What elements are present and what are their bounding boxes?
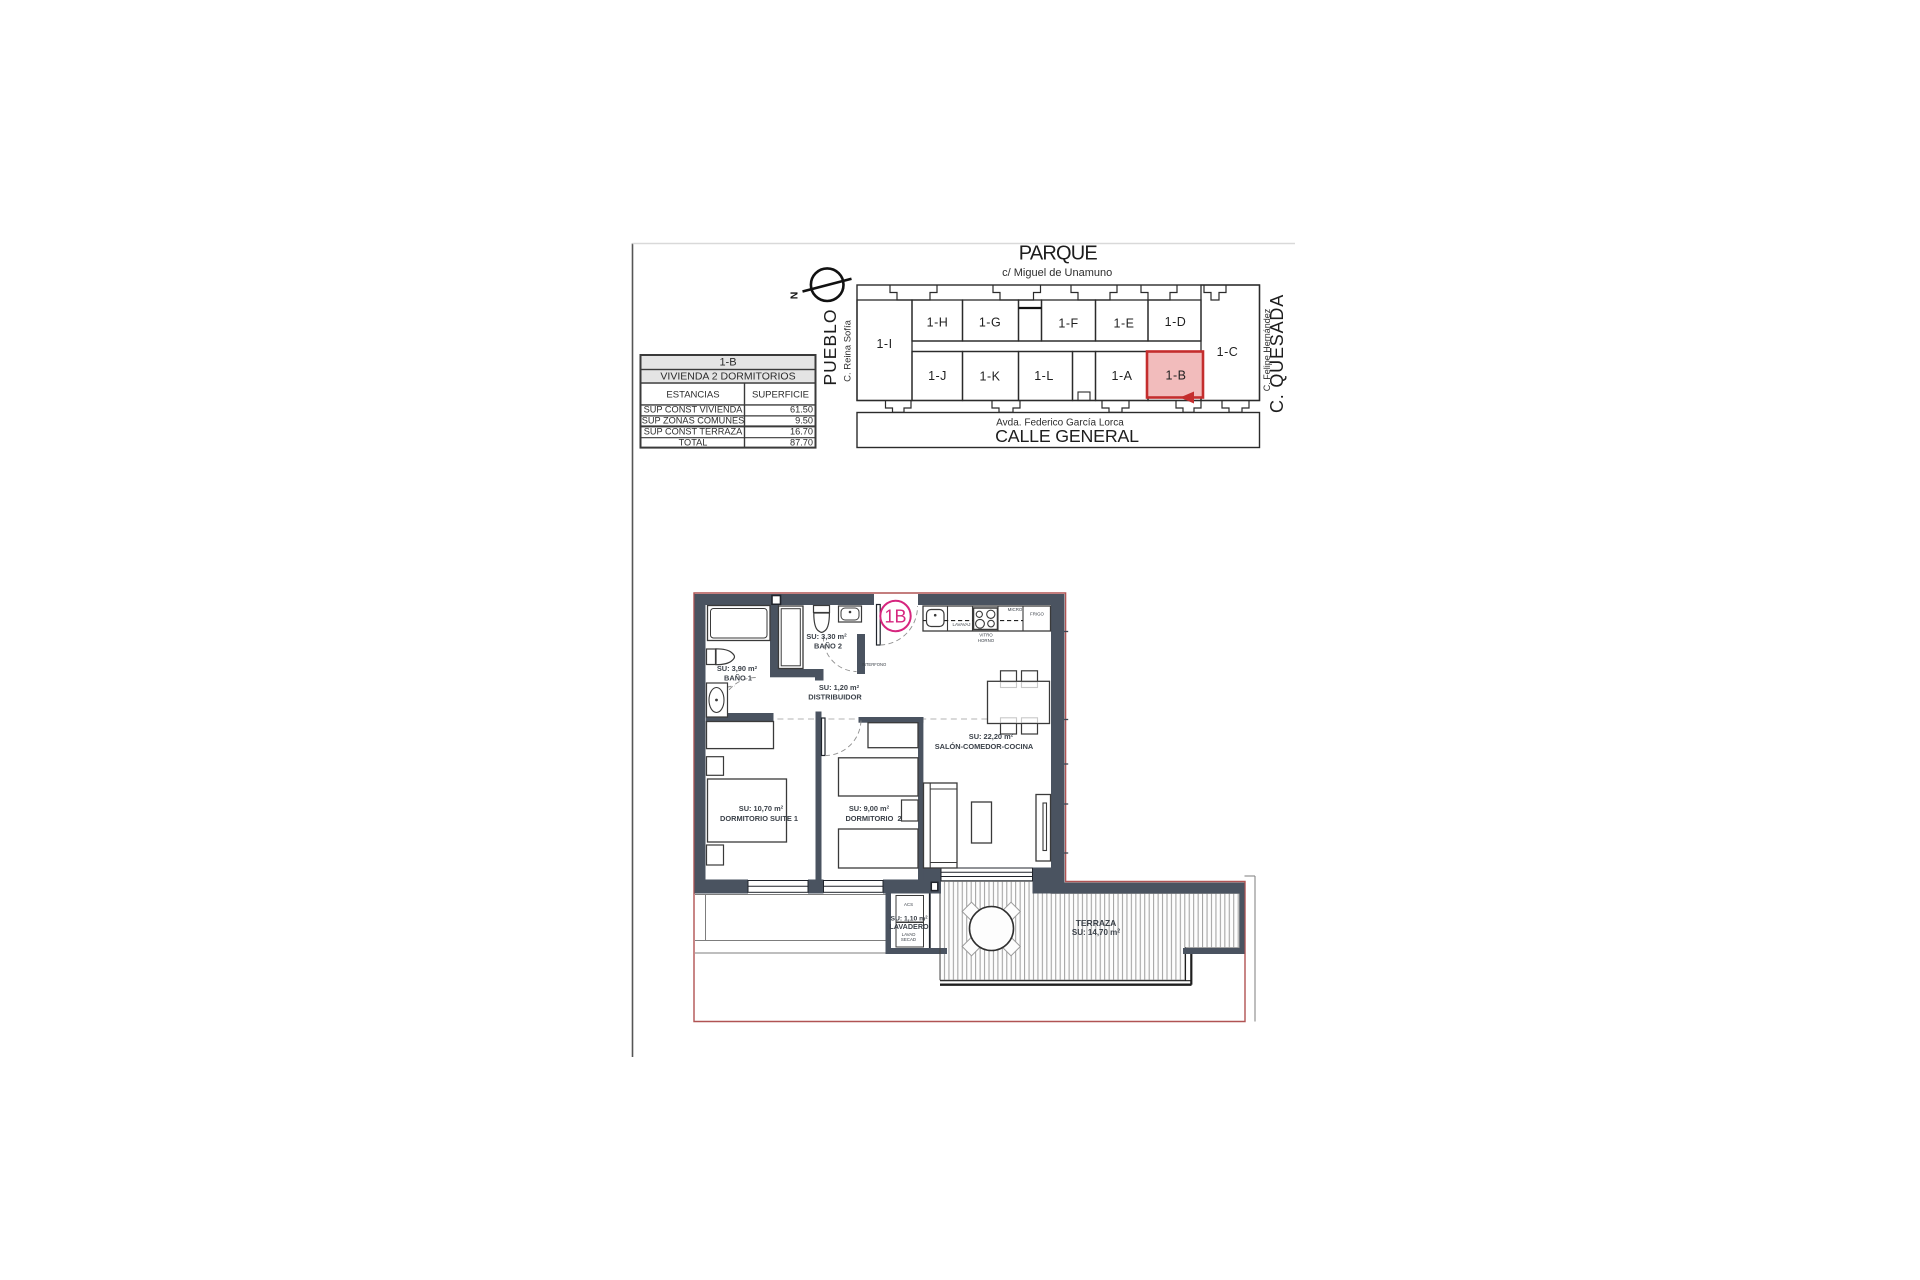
- svg-text:SU: 3,30 m2: SU: 3,30 m2: [806, 632, 847, 641]
- svg-text:DORMITORIO 2: DORMITORIO 2: [845, 814, 901, 823]
- svg-text:1-K: 1-K: [980, 370, 1001, 384]
- svg-text:SUP CONST VIVIENDA: SUP CONST VIVIENDA: [644, 405, 744, 415]
- svg-text:1-I: 1-I: [876, 337, 892, 351]
- svg-text:FRIGO: FRIGO: [1030, 612, 1044, 617]
- svg-text:1-F: 1-F: [1058, 317, 1078, 331]
- svg-text:SU: 1,20 m2: SU: 1,20 m2: [819, 683, 860, 692]
- svg-text:DISTRIBUIDOR: DISTRIBUIDOR: [808, 693, 862, 702]
- svg-text:ACS: ACS: [904, 902, 913, 907]
- svg-text:CALLE GENERAL: CALLE GENERAL: [995, 426, 1139, 446]
- svg-text:c/ Miguel de Unamuno: c/ Miguel de Unamuno: [1002, 267, 1112, 279]
- svg-text:C. QUESADA: C. QUESADA: [1267, 294, 1287, 413]
- svg-text:9.50: 9.50: [795, 416, 813, 426]
- svg-text:BAÑO 2: BAÑO 2: [814, 641, 842, 650]
- svg-text:1-E: 1-E: [1114, 317, 1135, 331]
- svg-text:1-B: 1-B: [1166, 369, 1187, 383]
- svg-text:1-A: 1-A: [1112, 369, 1133, 383]
- svg-text:SU: 22,20 m2: SU: 22,20 m2: [969, 732, 1014, 741]
- svg-text:1B: 1B: [884, 606, 906, 626]
- svg-text:1-H: 1-H: [927, 316, 949, 330]
- svg-text:LAVAVAJ: LAVAVAJ: [953, 622, 971, 627]
- svg-text:HORNO: HORNO: [978, 638, 995, 643]
- svg-text:LAVADERO: LAVADERO: [889, 922, 929, 931]
- svg-text:C. Reina Sofía: C. Reina Sofía: [843, 319, 854, 381]
- svg-text:VITRO: VITRO: [979, 633, 993, 638]
- svg-text:1-G: 1-G: [979, 316, 1001, 330]
- svg-text:SUP ZONAS COMUNES: SUP ZONAS COMUNES: [642, 416, 744, 426]
- svg-text:TOTAL: TOTAL: [679, 437, 708, 447]
- svg-text:16.70: 16.70: [790, 427, 813, 437]
- svg-text:SECAD: SECAD: [901, 937, 916, 942]
- svg-text:SU: 9,00 m2: SU: 9,00 m2: [849, 804, 890, 813]
- svg-text:INTERFONO: INTERFONO: [862, 662, 887, 667]
- svg-text:BAÑO 1: BAÑO 1: [724, 674, 752, 683]
- svg-text:SALÓN-COMEDOR-COCINA: SALÓN-COMEDOR-COCINA: [935, 742, 1034, 751]
- svg-text:SUP CONST TERRAZA: SUP CONST TERRAZA: [644, 427, 743, 437]
- svg-text:1-L: 1-L: [1034, 369, 1054, 383]
- svg-text:N: N: [789, 292, 801, 300]
- svg-text:PARQUE: PARQUE: [1019, 243, 1098, 265]
- svg-text:PUEBLO: PUEBLO: [820, 309, 840, 386]
- svg-text:VIVIENDA 2 DORMITORIOS: VIVIENDA 2 DORMITORIOS: [660, 370, 795, 382]
- svg-text:SU: 3,90 m2: SU: 3,90 m2: [717, 664, 758, 673]
- svg-text:DORMITORIO SUITE 1: DORMITORIO SUITE 1: [720, 814, 798, 823]
- svg-text:LAVAD: LAVAD: [902, 932, 916, 937]
- svg-text:ESTANCIAS: ESTANCIAS: [666, 390, 719, 401]
- svg-text:1-D: 1-D: [1165, 315, 1187, 329]
- svg-text:87.70: 87.70: [790, 437, 813, 447]
- svg-text:1-C: 1-C: [1217, 345, 1239, 359]
- svg-text:1-B: 1-B: [719, 357, 736, 369]
- svg-text:SU: 10,70 m2: SU: 10,70 m2: [739, 804, 784, 813]
- svg-text:MICRO: MICRO: [1008, 607, 1023, 612]
- svg-text:1-J: 1-J: [928, 369, 947, 383]
- svg-text:61.50: 61.50: [790, 405, 813, 415]
- svg-text:SUPERFICIE: SUPERFICIE: [752, 390, 809, 401]
- svg-text:TERRAZA: TERRAZA: [1076, 918, 1117, 928]
- svg-text:SU: 14,70 m2: SU: 14,70 m2: [1072, 928, 1120, 937]
